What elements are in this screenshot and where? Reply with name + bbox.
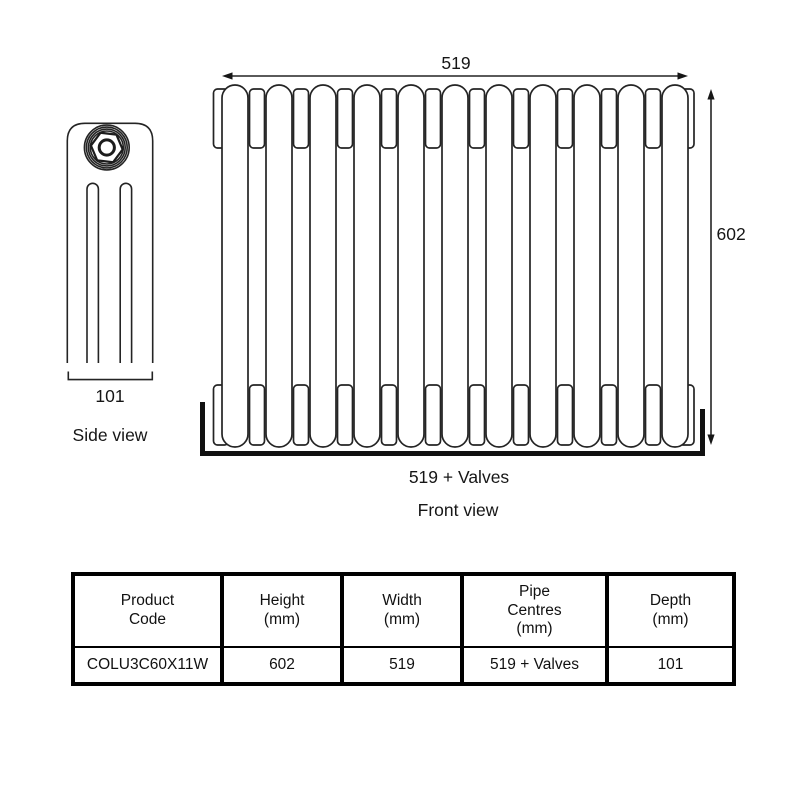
side-view-drawing: 101 Side view: [67, 123, 152, 445]
rear-tube-top: [426, 89, 441, 148]
rear-tube-bottom: [646, 385, 661, 445]
height-dimension-value: 602: [717, 224, 746, 244]
cell-pipe-centres: 519 + Valves: [462, 647, 607, 684]
cell-product-code: COLU3C60X11W: [73, 647, 222, 684]
header-pipe-centres: Pipe Centres (mm): [462, 574, 607, 647]
width-dimension-value: 519: [441, 53, 470, 73]
rear-tube-top: [558, 89, 573, 148]
cell-height: 602: [222, 647, 342, 684]
table-row: COLU3C60X11W 602 519 519 + Valves 101: [73, 647, 734, 684]
table-header-row: Product Code Height (mm) Width (mm) Pipe…: [73, 574, 734, 647]
rear-tube-bottom: [514, 385, 529, 445]
rear-tube-top: [470, 89, 485, 148]
rear-tube-bottom: [426, 385, 441, 445]
spec-table: Product Code Height (mm) Width (mm) Pipe…: [71, 572, 736, 686]
rear-tube-top: [602, 89, 617, 148]
height-arrow-top: [707, 89, 714, 100]
front-tube: [398, 85, 424, 447]
header-product-code: Product Code: [73, 574, 222, 647]
rear-tube-bottom: [602, 385, 617, 445]
pipe-centres-dimension-value: 519 + Valves: [409, 467, 510, 487]
rear-tube-top: [646, 89, 661, 148]
radiator-dimension-sheet: 101 Side view 519 602 519 + Valves Front…: [0, 0, 800, 800]
header-depth: Depth (mm): [607, 574, 734, 647]
front-view-columns: [214, 85, 695, 447]
front-tube: [618, 85, 644, 447]
spec-table-grid: Product Code Height (mm) Width (mm) Pipe…: [71, 572, 736, 686]
width-arrow-right: [678, 72, 689, 79]
rear-tube-bottom: [250, 385, 265, 445]
rear-tube-top: [338, 89, 353, 148]
front-tube: [530, 85, 556, 447]
side-groove-left: [87, 183, 98, 363]
rear-tube-top: [294, 89, 309, 148]
rear-tube-bottom: [338, 385, 353, 445]
width-arrow-left: [222, 72, 233, 79]
front-tube: [266, 85, 292, 447]
header-width: Width (mm): [342, 574, 462, 647]
front-view-label: Front view: [418, 500, 499, 520]
rear-tube-bottom: [558, 385, 573, 445]
front-tube: [486, 85, 512, 447]
front-tube: [574, 85, 600, 447]
front-tube: [442, 85, 468, 447]
valve-nut-icon: [84, 125, 129, 170]
rear-tube-bottom: [382, 385, 397, 445]
side-view-label: Side view: [73, 425, 148, 445]
rear-tube-bottom: [470, 385, 485, 445]
cell-depth: 101: [607, 647, 734, 684]
rear-tube-top: [250, 89, 265, 148]
height-arrow-bottom: [707, 435, 714, 446]
rear-tube-top: [382, 89, 397, 148]
front-tube: [310, 85, 336, 447]
header-height: Height (mm): [222, 574, 342, 647]
front-tube: [222, 85, 248, 447]
technical-diagram: 101 Side view 519 602 519 + Valves Front…: [0, 0, 800, 545]
depth-dimension-value: 101: [95, 386, 124, 406]
side-groove-right: [120, 183, 131, 363]
rear-tube-bottom: [294, 385, 309, 445]
rear-tube-top: [514, 89, 529, 148]
cell-width: 519: [342, 647, 462, 684]
depth-dimension-bracket: [68, 372, 152, 380]
front-tube: [662, 85, 688, 447]
front-tube: [354, 85, 380, 447]
